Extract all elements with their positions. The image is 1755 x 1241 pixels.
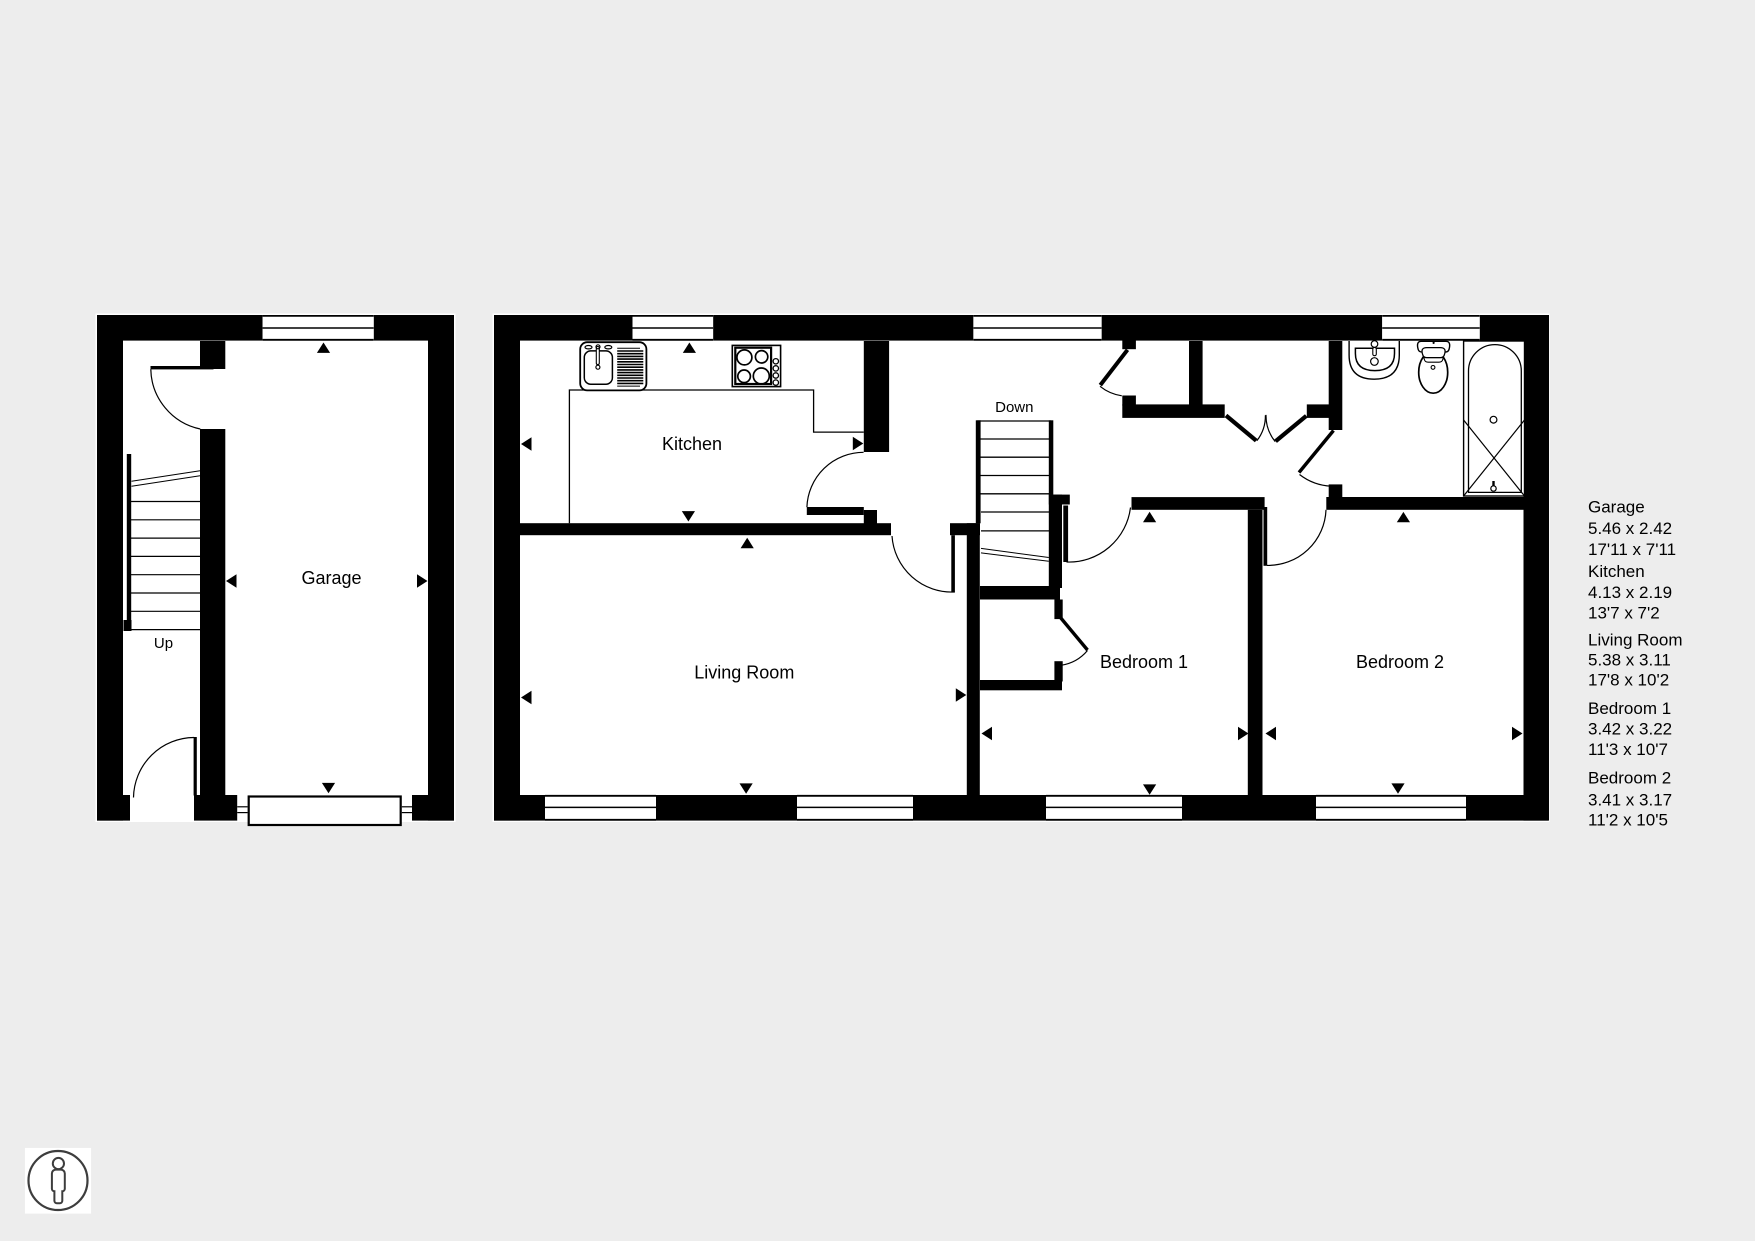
svg-text:Up: Up — [154, 635, 173, 652]
svg-text:Living Room: Living Room — [694, 663, 794, 683]
svg-text:Garage: Garage — [1588, 497, 1645, 516]
svg-text:Bedroom 1: Bedroom 1 — [1100, 652, 1188, 672]
svg-text:11'2 x 10'5: 11'2 x 10'5 — [1588, 810, 1668, 829]
svg-text:5.38 x 3.11: 5.38 x 3.11 — [1588, 651, 1671, 670]
svg-text:Living Room: Living Room — [1588, 631, 1683, 650]
svg-text:Bedroom 1: Bedroom 1 — [1588, 699, 1671, 718]
svg-text:17'8 x 10'2: 17'8 x 10'2 — [1588, 670, 1669, 689]
svg-text:5.46 x 2.42: 5.46 x 2.42 — [1588, 519, 1672, 538]
svg-text:3.41 x 3.17: 3.41 x 3.17 — [1588, 791, 1672, 810]
svg-text:Bedroom 2: Bedroom 2 — [1588, 769, 1671, 788]
svg-text:4.13 x 2.19: 4.13 x 2.19 — [1588, 583, 1672, 602]
svg-text:Kitchen: Kitchen — [1588, 562, 1645, 581]
svg-text:Garage: Garage — [301, 568, 361, 588]
svg-text:3.42 x 3.22: 3.42 x 3.22 — [1588, 720, 1672, 739]
svg-text:Kitchen: Kitchen — [662, 434, 722, 454]
svg-text:Down: Down — [995, 399, 1033, 416]
svg-text:13'7 x 7'2: 13'7 x 7'2 — [1588, 603, 1660, 622]
svg-text:Bedroom 2: Bedroom 2 — [1356, 652, 1444, 672]
svg-text:11'3 x 10'7: 11'3 x 10'7 — [1588, 740, 1668, 759]
svg-text:17'11 x 7'11: 17'11 x 7'11 — [1588, 540, 1676, 559]
